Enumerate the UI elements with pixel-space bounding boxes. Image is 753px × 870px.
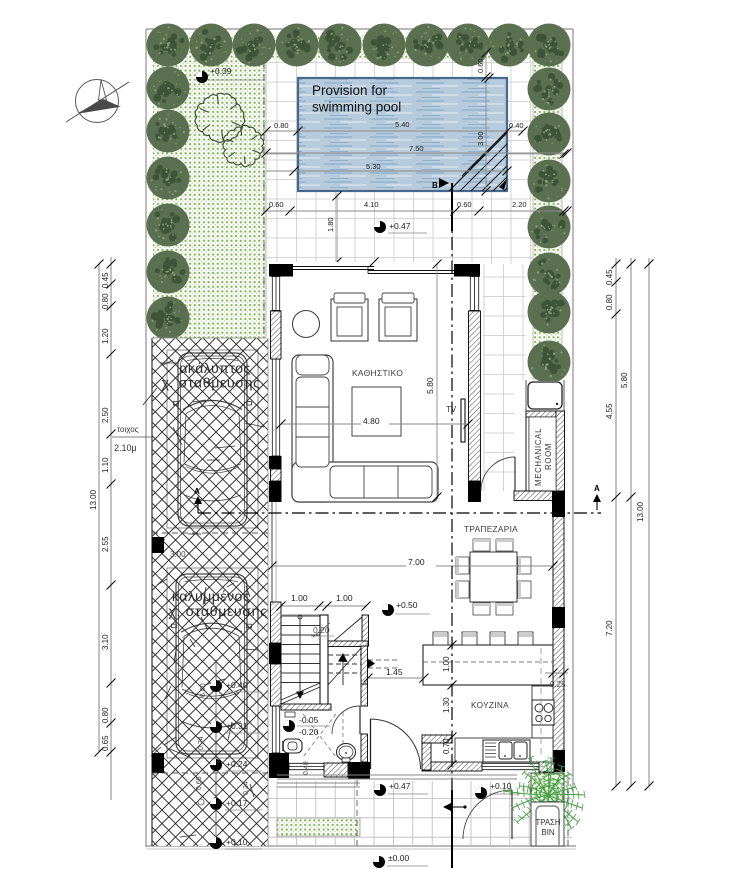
svg-text:2.20: 2.20 (512, 200, 527, 209)
svg-text:13.00: 13.00 (89, 489, 98, 510)
svg-text:6.00: 6.00 (200, 683, 207, 697)
svg-text:-0.20: -0.20 (299, 727, 319, 737)
svg-text:+0.40: +0.40 (226, 680, 248, 690)
svg-text:0.45: 0.45 (605, 269, 614, 285)
svg-text:1.20: 1.20 (101, 328, 110, 344)
svg-text:-0.05: -0.05 (299, 715, 319, 725)
svg-text:A: A (194, 487, 200, 496)
svg-text:MECHANICAL: MECHANICAL (534, 428, 543, 486)
svg-text:0.80: 0.80 (274, 121, 289, 130)
svg-text:0.45: 0.45 (101, 272, 110, 288)
svg-text:7.20: 7.20 (605, 620, 614, 636)
svg-text:ΤΡΑΣΗ: ΤΡΑΣΗ (535, 818, 560, 827)
svg-text:0.25: 0.25 (550, 680, 566, 689)
svg-text:+0.10: +0.10 (490, 781, 512, 791)
svg-text:0.60: 0.60 (457, 200, 472, 209)
svg-text:5.40: 5.40 (395, 120, 410, 129)
svg-text:5.80: 5.80 (425, 377, 435, 394)
svg-text:3.00: 3.00 (476, 131, 485, 146)
svg-text:4.55: 4.55 (605, 403, 614, 419)
svg-text:1.10: 1.10 (101, 457, 110, 473)
svg-text:3.10: 3.10 (101, 634, 110, 650)
svg-text:4.80: 4.80 (363, 416, 380, 426)
svg-text:0.65: 0.65 (196, 776, 203, 790)
svg-text:2.55: 2.55 (101, 536, 110, 552)
svg-text:τοιχος: τοιχος (117, 425, 139, 434)
svg-text:B: B (432, 181, 438, 190)
svg-text:0.40: 0.40 (303, 761, 310, 775)
svg-text:0.74: 0.74 (198, 736, 205, 750)
svg-text:13.00: 13.00 (636, 501, 645, 522)
svg-text:5.80: 5.80 (620, 372, 629, 388)
svg-text:ROOM: ROOM (544, 443, 553, 470)
svg-text:1.00: 1.00 (291, 593, 308, 603)
svg-text:2.50: 2.50 (101, 407, 110, 423)
svg-text:7.00: 7.00 (408, 557, 425, 567)
svg-text:+0.10: +0.10 (226, 837, 248, 847)
svg-text:0.65: 0.65 (101, 735, 110, 751)
svg-text:±0.00: ±0.00 (388, 853, 409, 863)
svg-text:1.00: 1.00 (336, 593, 353, 603)
svg-text:BIN: BIN (542, 828, 555, 837)
svg-text:1.00: 1.00 (442, 656, 451, 672)
svg-text:+0.47: +0.47 (389, 781, 411, 791)
svg-text:+0.31: +0.31 (226, 721, 248, 731)
svg-text:1.30: 1.30 (442, 697, 451, 713)
svg-text:3.00: 3.00 (170, 550, 186, 559)
svg-text:0.60: 0.60 (476, 58, 485, 73)
svg-text:Provision for: Provision for (312, 83, 388, 98)
svg-text:0.70: 0.70 (442, 738, 451, 754)
svg-text:7.50: 7.50 (409, 144, 424, 153)
svg-text:+0.50: +0.50 (396, 600, 418, 610)
svg-text:0.80: 0.80 (605, 294, 614, 310)
svg-text:+0.39: +0.39 (210, 66, 232, 76)
svg-text:0.80: 0.80 (101, 293, 110, 309)
svg-text:A: A (594, 484, 600, 493)
svg-text:0.24: 0.24 (243, 781, 250, 795)
svg-text:5.30: 5.30 (366, 162, 381, 171)
svg-text:0.40: 0.40 (509, 121, 524, 130)
svg-text:ΚΟΥΖΙΝΑ: ΚΟΥΖΙΝΑ (471, 700, 509, 710)
svg-text:ΤΡΑΠΕΖΑΡΙΑ: ΤΡΑΠΕΖΑΡΙΑ (464, 524, 518, 534)
svg-text:+0.24: +0.24 (226, 759, 248, 769)
svg-text:swimming pool: swimming pool (312, 100, 401, 115)
svg-text:+0.47: +0.47 (389, 221, 411, 231)
svg-text:1.45: 1.45 (386, 667, 403, 677)
svg-text:+0.17: +0.17 (226, 798, 248, 808)
svg-text:4.10: 4.10 (364, 200, 379, 209)
svg-text:0.60: 0.60 (269, 200, 284, 209)
svg-text:ΚΑΘΗΣΤΙΚΟ: ΚΑΘΗΣΤΙΚΟ (352, 368, 403, 378)
svg-text:2.10μ: 2.10μ (114, 443, 137, 453)
svg-text:1.80: 1.80 (326, 217, 335, 232)
svg-text:0.80: 0.80 (101, 707, 110, 723)
